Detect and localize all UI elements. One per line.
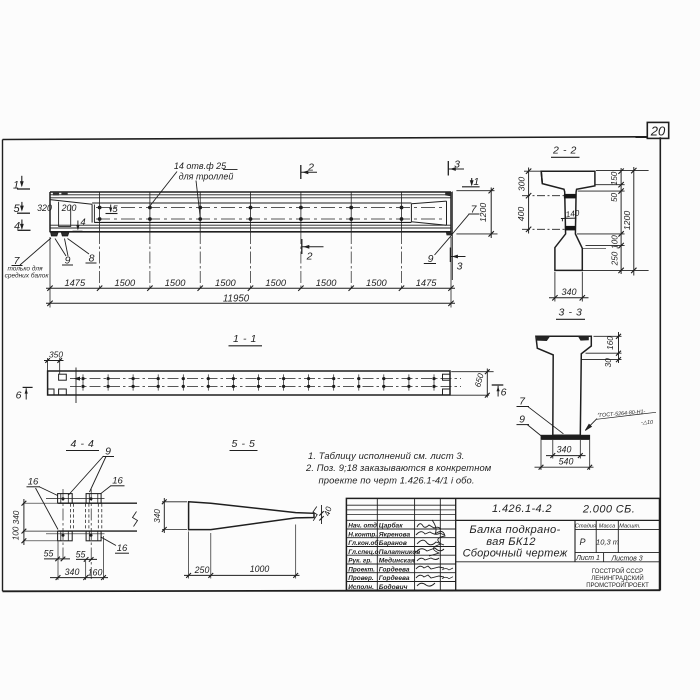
svg-text:1.426.1-4.2: 1.426.1-4.2 <box>492 503 552 515</box>
svg-text:340: 340 <box>561 287 576 297</box>
svg-text:340: 340 <box>152 509 162 523</box>
svg-text:Масса: Масса <box>599 524 616 530</box>
svg-text:Гордеева: Гордеева <box>379 574 410 582</box>
svg-text:250: 250 <box>194 565 210 575</box>
svg-text:9: 9 <box>105 446 111 458</box>
svg-text:2. Поз. 9;18 заказываются в ко: 2. Поз. 9;18 заказываются в конкретном <box>305 462 492 473</box>
svg-text:Р: Р <box>579 537 585 547</box>
svg-text:300: 300 <box>516 177 526 192</box>
svg-text:200: 200 <box>61 203 77 213</box>
svg-text:Провер.: Провер. <box>348 575 374 582</box>
svg-text:1500: 1500 <box>366 278 388 288</box>
svg-text:2.000 СБ.: 2.000 СБ. <box>582 504 635 516</box>
svg-text:Нач. отд: Нач. отд <box>348 522 377 530</box>
svg-text:100: 100 <box>11 526 21 540</box>
svg-text:340: 340 <box>11 510 21 524</box>
svg-text:20: 20 <box>650 123 666 138</box>
svg-text:14 отв.ф 25: 14 отв.ф 25 <box>174 161 227 171</box>
svg-text:3: 3 <box>454 159 460 171</box>
svg-text:1500: 1500 <box>114 278 136 288</box>
svg-text:30: 30 <box>604 358 613 368</box>
svg-text:5: 5 <box>112 204 118 215</box>
svg-text:1: 1 <box>473 176 479 188</box>
svg-text:только для: только для <box>7 265 43 273</box>
svg-text:Листов 3: Листов 3 <box>610 556 642 563</box>
svg-text:100: 100 <box>610 235 619 249</box>
svg-text:140: 140 <box>565 207 580 219</box>
svg-text:Баранов: Баранов <box>379 540 407 547</box>
svg-text:2: 2 <box>306 251 313 263</box>
svg-text:2 - 2: 2 - 2 <box>552 145 577 157</box>
svg-text:11950: 11950 <box>223 293 250 304</box>
svg-text:50: 50 <box>610 193 619 203</box>
svg-text:16: 16 <box>28 477 39 488</box>
svg-text:1500: 1500 <box>316 278 338 288</box>
svg-text:16: 16 <box>117 543 128 554</box>
svg-text:для троллей: для троллей <box>179 172 234 182</box>
svg-text:средних балок: средних балок <box>5 272 50 280</box>
svg-text:Мединская: Мединская <box>379 557 415 565</box>
svg-text:Проект.: Проект. <box>348 566 375 573</box>
svg-text:Исполн.: Исполн. <box>348 584 374 591</box>
svg-text:3 - 3: 3 - 3 <box>558 307 582 319</box>
svg-text:1 - 1: 1 - 1 <box>233 333 257 345</box>
svg-text:4: 4 <box>80 217 85 228</box>
svg-text:Лист 1: Лист 1 <box>575 555 600 562</box>
svg-text:55: 55 <box>76 550 86 560</box>
svg-text:16: 16 <box>112 476 123 487</box>
svg-text:10,3 т: 10,3 т <box>596 538 619 547</box>
svg-text:Палатников: Палатников <box>379 549 421 556</box>
svg-text:320: 320 <box>37 203 52 213</box>
svg-text:вая БК12: вая БК12 <box>486 536 536 548</box>
svg-text:6: 6 <box>16 390 22 402</box>
svg-text:250: 250 <box>610 251 619 266</box>
svg-text:Балка подкрано-: Балка подкрано- <box>469 524 560 536</box>
svg-text:1200: 1200 <box>478 203 488 222</box>
svg-text:проекте по черт 1.426.1-4/1 i: проекте по черт 1.426.1-4/1 i обо. <box>319 475 475 486</box>
svg-text:6: 6 <box>501 387 507 399</box>
svg-text:350: 350 <box>49 350 63 360</box>
svg-text:Гл.кон.об: Гл.кон.об <box>348 539 379 547</box>
svg-text:400: 400 <box>516 207 526 222</box>
svg-text:Гордеева: Гордеева <box>379 565 410 573</box>
svg-text:Рук. гр.: Рук. гр. <box>348 558 372 565</box>
svg-text:160: 160 <box>88 568 103 578</box>
svg-text:340: 340 <box>557 445 572 455</box>
svg-text:1475: 1475 <box>416 278 438 288</box>
svg-text:1500: 1500 <box>265 278 287 288</box>
svg-text:1475: 1475 <box>64 278 86 288</box>
svg-text:3: 3 <box>457 261 463 273</box>
svg-text:1000: 1000 <box>250 564 270 574</box>
svg-text:1. Таблицу исполнений см. лис: 1. Таблицу исполнений см. лист 3. <box>308 450 464 461</box>
svg-text:150: 150 <box>610 171 619 185</box>
svg-text:ЛЕНИНГРАДСКИЙ: ЛЕНИНГРАДСКИЙ <box>591 574 644 582</box>
svg-text:Царбак: Царбак <box>379 522 403 530</box>
svg-text:Бодович: Бодович <box>379 583 408 591</box>
svg-text:1500: 1500 <box>215 278 237 288</box>
svg-text:-△10: -△10 <box>641 420 653 426</box>
svg-text:55: 55 <box>44 549 54 559</box>
svg-text:4 - 4: 4 - 4 <box>70 438 94 450</box>
svg-text:Сборочный чертеж: Сборочный чертеж <box>463 548 568 560</box>
svg-text:340: 340 <box>65 567 80 577</box>
svg-text:ГОССТРОЙ СССР: ГОССТРОЙ СССР <box>592 567 643 575</box>
svg-text:Гл.спец.о: Гл.спец.о <box>348 549 378 556</box>
svg-text:Якренова: Якренова <box>378 531 411 538</box>
svg-text:Масшт.: Масшт. <box>619 524 640 530</box>
svg-text:1500: 1500 <box>165 278 187 288</box>
svg-text:ПРОМСТРОЙПРОЕКТ: ПРОМСТРОЙПРОЕКТ <box>586 581 649 589</box>
svg-text:9: 9 <box>519 414 525 426</box>
svg-text:2: 2 <box>307 162 314 174</box>
svg-text:1200: 1200 <box>622 211 632 230</box>
svg-text:540: 540 <box>559 457 574 467</box>
svg-text:Н.контр.: Н.контр. <box>348 531 377 538</box>
svg-text:5 - 5: 5 - 5 <box>231 438 255 450</box>
svg-text:Стадия: Стадия <box>575 524 596 530</box>
svg-text:160: 160 <box>606 336 615 350</box>
